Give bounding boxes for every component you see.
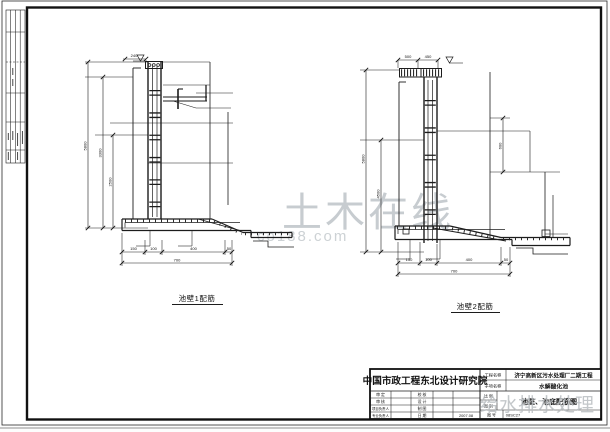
dim-label: 450	[425, 54, 432, 59]
dim-label: 500	[405, 54, 412, 59]
dim-label: 400	[190, 246, 197, 251]
dim-label: 4500	[376, 189, 381, 199]
dim-label: 150	[406, 257, 413, 262]
signoff-date: 2007.08	[459, 413, 473, 418]
subproject-name: 水解酸化池	[539, 383, 568, 391]
dim-label: 5800	[361, 154, 366, 164]
signoff-label: 项目负责人	[372, 406, 390, 411]
signoff-label: 专业负责人	[372, 413, 390, 418]
detail-2-caption: 池壁2配筋	[457, 301, 494, 311]
signoff-label: 设 计	[418, 399, 427, 404]
project-label: 工程名称	[485, 372, 502, 379]
dim-label: 100	[425, 257, 432, 262]
dim-label: 2500	[108, 177, 113, 187]
dim-label: 50	[227, 246, 232, 251]
watermark-url-text: co188.com	[257, 228, 348, 245]
dim-label: 700	[174, 258, 181, 263]
dim-label: 240	[131, 53, 138, 58]
signoff-label: 日 期	[418, 413, 427, 418]
cad-drawing-screenshot: 土木在线 co188.com 240	[0, 0, 610, 432]
project-name: 济宁高新区污水处理厂二期工程	[514, 372, 593, 380]
company-name: 中国市政工程东北设计研究院	[363, 375, 488, 387]
subproject-label: 子项名称	[485, 383, 502, 390]
signoff-label: 审 定	[376, 392, 385, 397]
dim-label: 400	[466, 257, 473, 262]
dim-label: 150	[130, 246, 137, 251]
signoff-label: 制 图	[418, 406, 427, 411]
dim-label: 100	[150, 246, 157, 251]
dim-label: 3300	[98, 148, 103, 158]
watermark-bottom-text: 给水排水处理	[480, 394, 594, 416]
dim-label: 700	[451, 269, 458, 274]
dim-label: 50	[504, 257, 509, 262]
dim-label: 5800	[83, 141, 88, 151]
signoff-label: 校 核	[418, 392, 427, 397]
dim-label: 600	[498, 142, 503, 149]
signoff-label: 审 核	[376, 399, 385, 404]
detail-1-caption: 池壁1配筋	[179, 293, 216, 303]
